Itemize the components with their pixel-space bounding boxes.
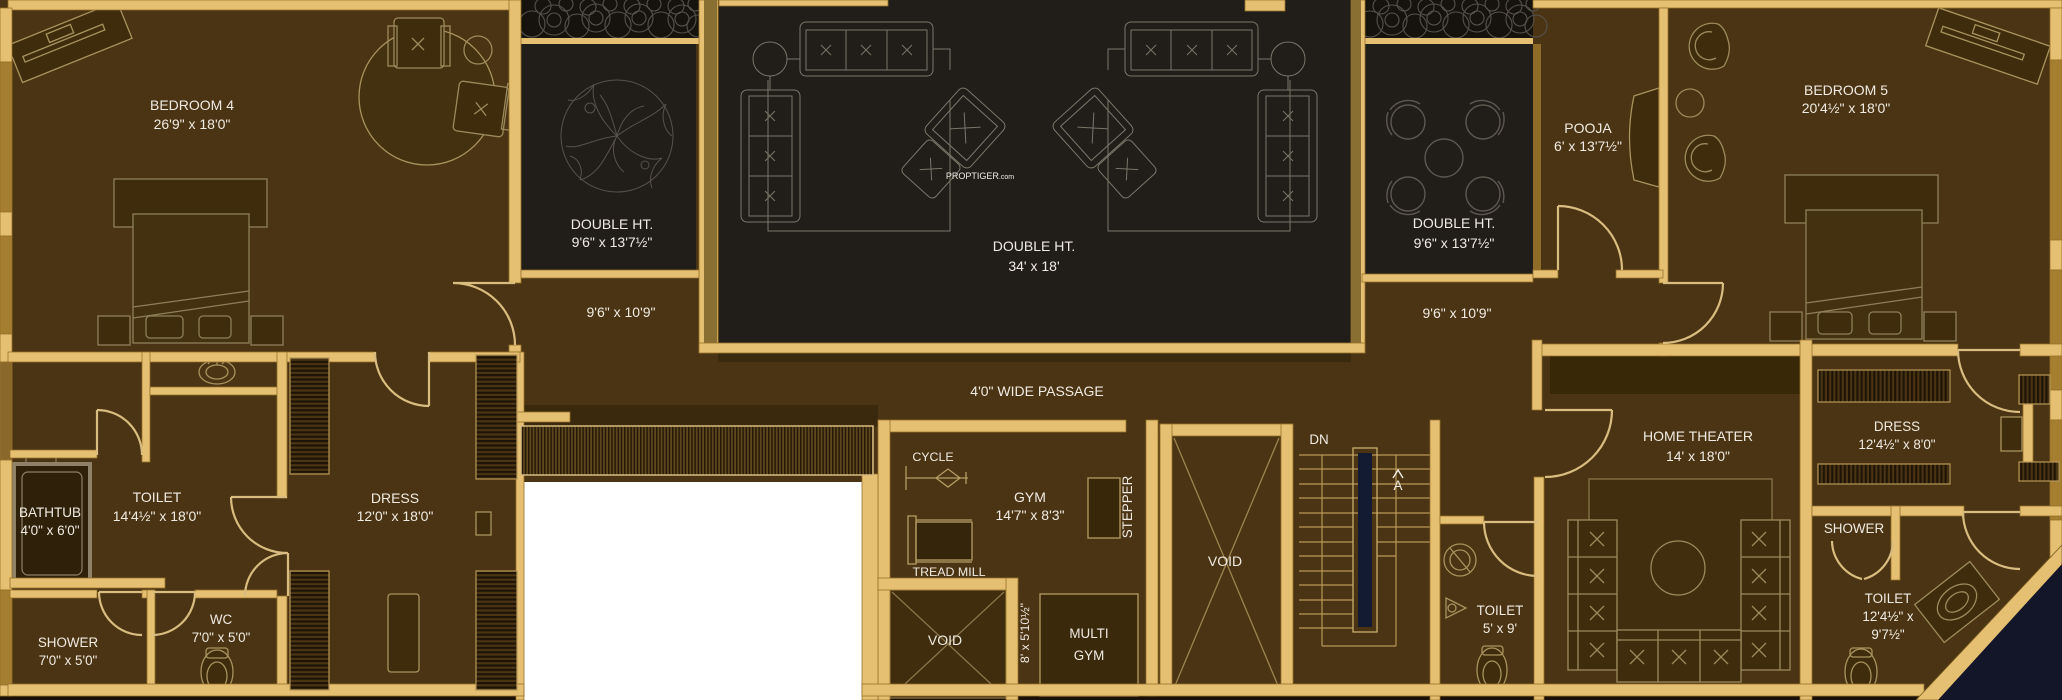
svg-text:4'0" WIDE PASSAGE: 4'0" WIDE PASSAGE (970, 383, 1103, 399)
svg-text:9'6" x 13'7½": 9'6" x 13'7½" (572, 234, 653, 250)
svg-text:7'0" x 5'0": 7'0" x 5'0" (39, 653, 98, 668)
svg-text:GYM: GYM (1074, 648, 1105, 663)
svg-text:DRESS: DRESS (1874, 419, 1920, 434)
svg-text:DRESS: DRESS (371, 490, 419, 506)
svg-text:CYCLE: CYCLE (912, 450, 953, 464)
svg-text:DOUBLE HT.: DOUBLE HT. (993, 238, 1075, 254)
svg-text:9'6" x 13'7½": 9'6" x 13'7½" (1414, 235, 1495, 251)
svg-text:DOUBLE HT.: DOUBLE HT. (571, 216, 653, 232)
svg-text:9'6" x 10'9": 9'6" x 10'9" (587, 304, 656, 320)
svg-text:14'4½" x 18'0": 14'4½" x 18'0" (113, 508, 201, 524)
svg-text:TOILET: TOILET (133, 489, 182, 505)
svg-text:26'9" x 18'0": 26'9" x 18'0" (154, 116, 231, 132)
svg-text:BEDROOM 4: BEDROOM 4 (150, 97, 234, 113)
svg-text:VOID: VOID (928, 632, 962, 648)
svg-text:POOJA: POOJA (1564, 120, 1612, 136)
svg-text:8' x 5'10½": 8' x 5'10½" (1018, 603, 1032, 663)
svg-text:9'7½": 9'7½" (1871, 627, 1905, 642)
svg-text:TOILET: TOILET (1865, 591, 1912, 606)
svg-text:HOME THEATER: HOME THEATER (1643, 428, 1753, 444)
svg-text:20'4½" x 18'0": 20'4½" x 18'0" (1802, 100, 1890, 116)
svg-text:7'0" x 5'0": 7'0" x 5'0" (192, 630, 251, 645)
svg-text:6' x 13'7½": 6' x 13'7½" (1554, 138, 1622, 154)
svg-text:34' x 18': 34' x 18' (1008, 258, 1059, 274)
svg-text:12'0" x 18'0": 12'0" x 18'0" (357, 508, 434, 524)
svg-text:9'6" x 10'9": 9'6" x 10'9" (1423, 305, 1492, 321)
svg-text:STEPPER: STEPPER (1120, 475, 1135, 538)
svg-text:DOUBLE HT.: DOUBLE HT. (1413, 215, 1495, 231)
svg-text:VOID: VOID (1208, 553, 1242, 569)
svg-text:TOILET: TOILET (1477, 603, 1524, 618)
svg-text:4'0" x 6'0": 4'0" x 6'0" (20, 523, 79, 538)
svg-text:12'4½" x: 12'4½" x (1862, 609, 1914, 624)
svg-text:MULTI: MULTI (1069, 626, 1108, 641)
svg-text:12'4½" x 8'0": 12'4½" x 8'0" (1858, 437, 1935, 452)
svg-text:14' x 18'0": 14' x 18'0" (1666, 448, 1730, 464)
svg-text:14'7" x 8'3": 14'7" x 8'3" (996, 507, 1065, 523)
svg-text:DN: DN (1309, 432, 1328, 447)
svg-text:5' x 9': 5' x 9' (1483, 621, 1517, 636)
svg-text:SHOWER: SHOWER (38, 635, 99, 650)
svg-text:TREAD MILL: TREAD MILL (913, 565, 986, 579)
svg-text:GYM: GYM (1014, 489, 1046, 505)
svg-text:BATHTUB: BATHTUB (19, 505, 81, 520)
svg-text:BEDROOM 5: BEDROOM 5 (1804, 82, 1888, 98)
svg-text:SHOWER: SHOWER (1824, 521, 1885, 536)
svg-text:WC: WC (210, 612, 233, 627)
svg-text:A: A (1394, 478, 1403, 493)
